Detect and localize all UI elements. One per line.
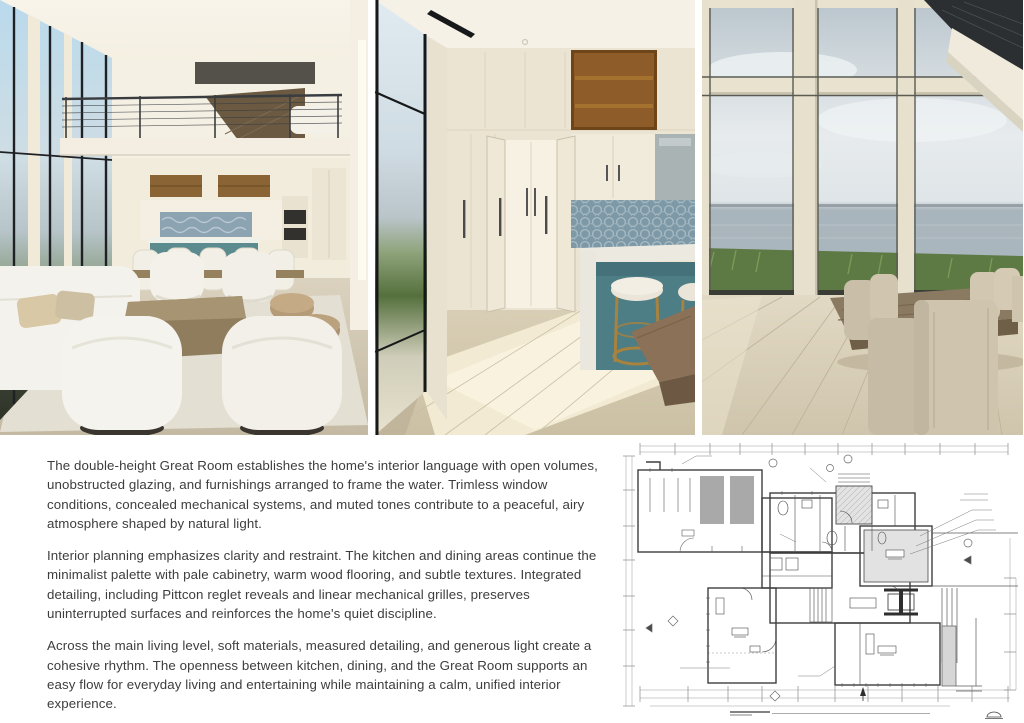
fireplace [884, 590, 918, 614]
paragraph-living-level: Across the main living level, soft mater… [47, 636, 607, 713]
garage [650, 476, 754, 552]
left-window [375, 0, 427, 435]
garage-stall [730, 476, 754, 524]
barrel-chair [222, 316, 342, 430]
patterned-backsplash [571, 200, 695, 248]
screened-porch [864, 530, 928, 582]
kitchen-rendering [375, 0, 695, 435]
first-floor-plan [620, 438, 1024, 723]
garage-stall [700, 476, 724, 524]
barrel-chair [62, 316, 182, 430]
presentation-page: The double-height Great Room establishes… [0, 0, 1024, 723]
corner-ellipse-marker [985, 712, 1003, 719]
dimension-lines [623, 443, 1016, 706]
floor-plan-drawing [620, 438, 1024, 723]
paragraph-interior-planning: Interior planning emphasizes clarity and… [47, 546, 607, 623]
photo-kitchen [375, 0, 695, 435]
photo-great-room [0, 0, 368, 435]
photo-strip [0, 0, 1024, 435]
swivel-chair [150, 252, 204, 302]
swivel-chair [222, 252, 276, 302]
plan-title-mark [730, 712, 930, 715]
open-pantry-door [487, 136, 505, 312]
dining-rendering [702, 0, 1023, 435]
wall-oven [284, 210, 306, 224]
north-arrow [860, 687, 866, 701]
description-text-block: The double-height Great Room establishes… [47, 456, 607, 723]
backsplash-tile [160, 212, 252, 237]
deck-steps [932, 533, 1018, 691]
mezzanine-lounge-chair [290, 106, 340, 134]
photo-dining [702, 0, 1023, 435]
paragraph-great-room: The double-height Great Room establishes… [47, 456, 607, 533]
great-room-rendering [0, 0, 368, 435]
entry-porch [836, 474, 872, 524]
